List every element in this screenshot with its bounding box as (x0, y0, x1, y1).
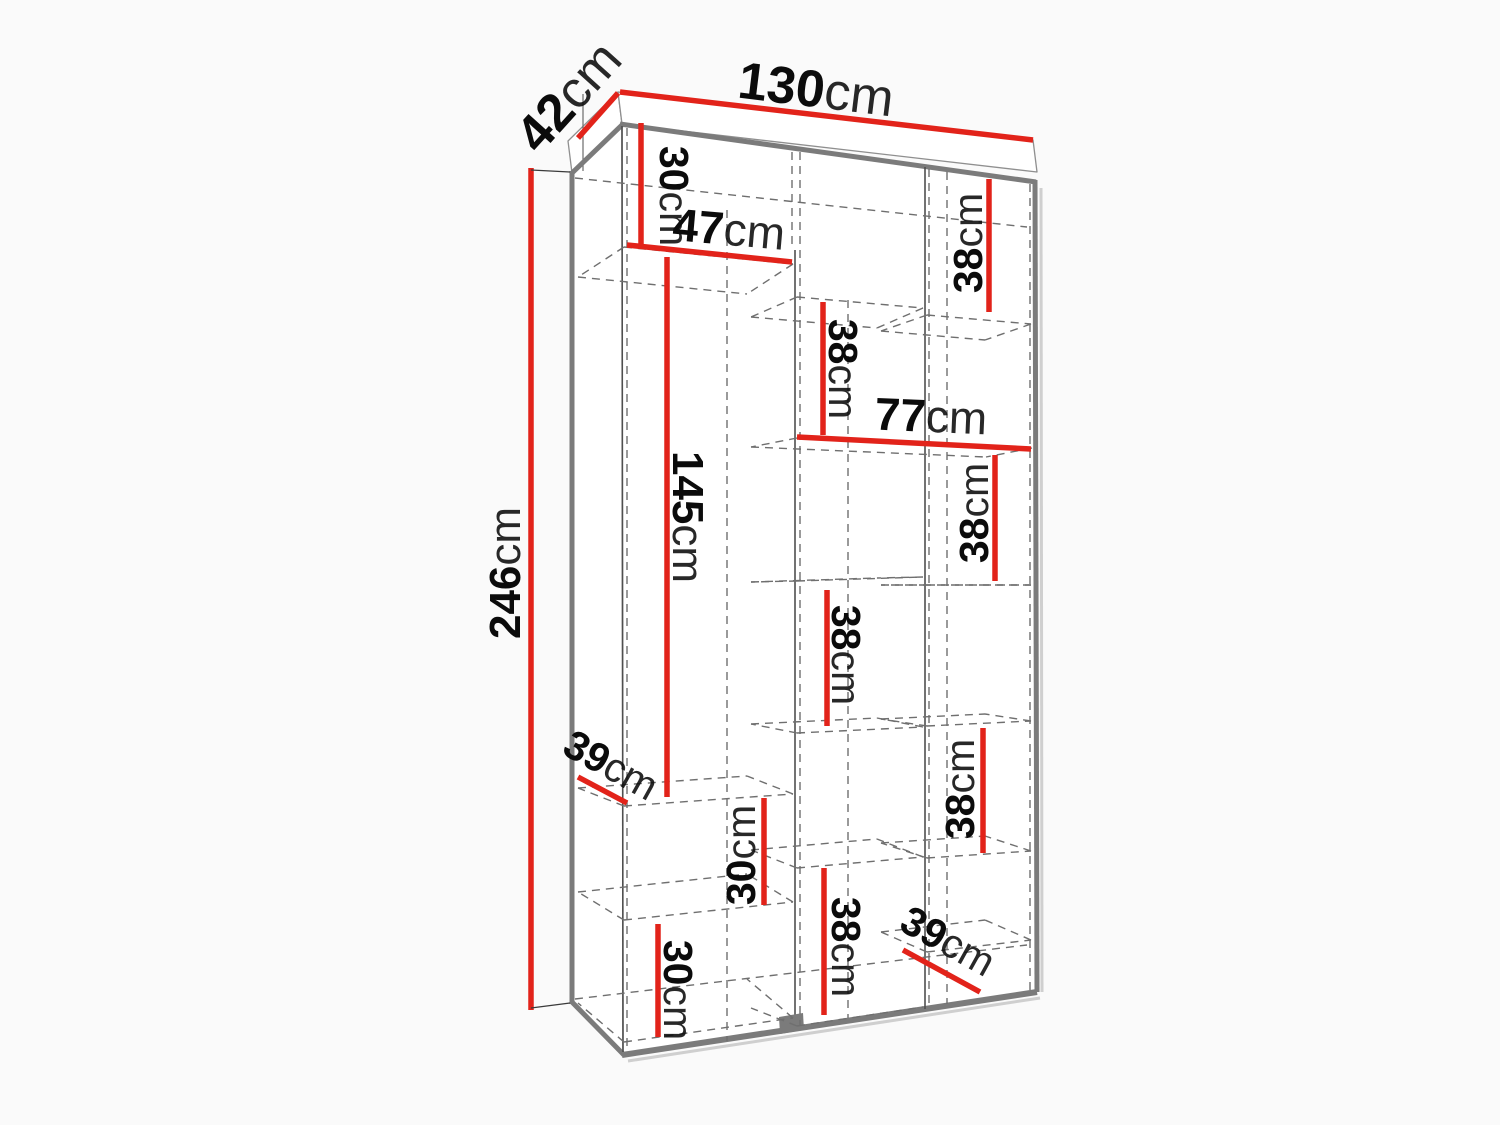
dim-label-38-right-lower: 38cm (937, 739, 983, 839)
dim-label-77: 77cm (874, 388, 989, 445)
dim-label-30-bottom: 30cm (655, 940, 701, 1040)
dim-tick (531, 1003, 570, 1008)
wardrobe-dimension-diagram: 130cm 42cm 246cm 30cm 47cm 145cm 38cm 38… (0, 0, 1500, 1125)
dim-label-47: 47cm (671, 198, 788, 260)
carcass-right-edge (1035, 180, 1037, 992)
dim-label-38-center-top: 38cm (820, 319, 866, 419)
dim-label-38-center-bottom: 38cm (823, 897, 869, 997)
dim-label-145: 145cm (664, 451, 713, 583)
dim-label-38-center-mid: 38cm (823, 605, 869, 705)
dim-label-38-right-top: 38cm (945, 193, 991, 293)
right-edge-shadow (1041, 188, 1042, 992)
dim-label-height: 246cm (481, 507, 530, 639)
dim-label-38-right-mid: 38cm (951, 463, 997, 563)
dim-tick (531, 170, 570, 172)
diagram-canvas: 130cm 42cm 246cm 30cm 47cm 145cm 38cm 38… (0, 0, 1500, 1125)
front-left-stile (622, 126, 623, 1052)
dim-label-30-mid: 30cm (718, 805, 764, 905)
